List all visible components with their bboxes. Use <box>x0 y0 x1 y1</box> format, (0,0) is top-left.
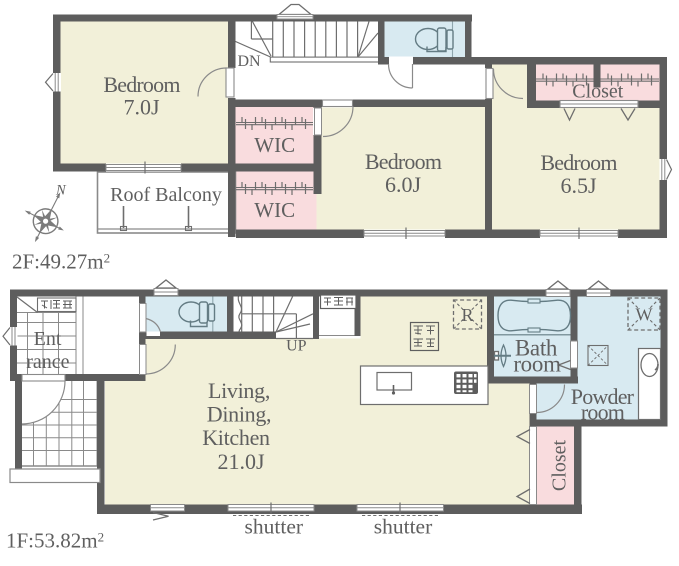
svg-text:WIC: WIC <box>254 133 295 157</box>
svg-text:WIC: WIC <box>254 198 295 222</box>
svg-text:Bedroom: Bedroom <box>365 149 442 174</box>
svg-text:N: N <box>55 183 67 199</box>
svg-text:Roof Balcony: Roof Balcony <box>110 184 222 206</box>
svg-text:room: room <box>581 400 625 425</box>
svg-text:shutter: shutter <box>245 515 304 539</box>
svg-text:Kitchen: Kitchen <box>202 425 270 450</box>
svg-text:Living,: Living, <box>208 378 270 403</box>
svg-text:room: room <box>513 352 561 377</box>
svg-text:shutter: shutter <box>374 515 433 539</box>
svg-text:21.0J: 21.0J <box>217 449 265 474</box>
svg-text:Closet: Closet <box>549 440 571 492</box>
svg-text:DN: DN <box>237 53 261 70</box>
svg-text:rance: rance <box>26 351 69 373</box>
svg-text:7.0J: 7.0J <box>123 95 160 120</box>
svg-text:W: W <box>636 305 653 325</box>
svg-text:6.5J: 6.5J <box>560 173 597 198</box>
svg-text:1F:53.82m2: 1F:53.82m2 <box>6 529 104 553</box>
svg-text:UP: UP <box>286 338 307 355</box>
svg-text:Closet: Closet <box>572 81 624 103</box>
svg-text:6.0J: 6.0J <box>385 172 422 197</box>
svg-text:2F:49.27m2: 2F:49.27m2 <box>12 250 110 274</box>
svg-text:Bedroom: Bedroom <box>540 150 617 175</box>
svg-text:Bedroom: Bedroom <box>103 72 180 97</box>
svg-text:R: R <box>461 305 473 325</box>
svg-text:Dining,: Dining, <box>207 402 272 427</box>
svg-text:Ent: Ent <box>34 328 62 350</box>
